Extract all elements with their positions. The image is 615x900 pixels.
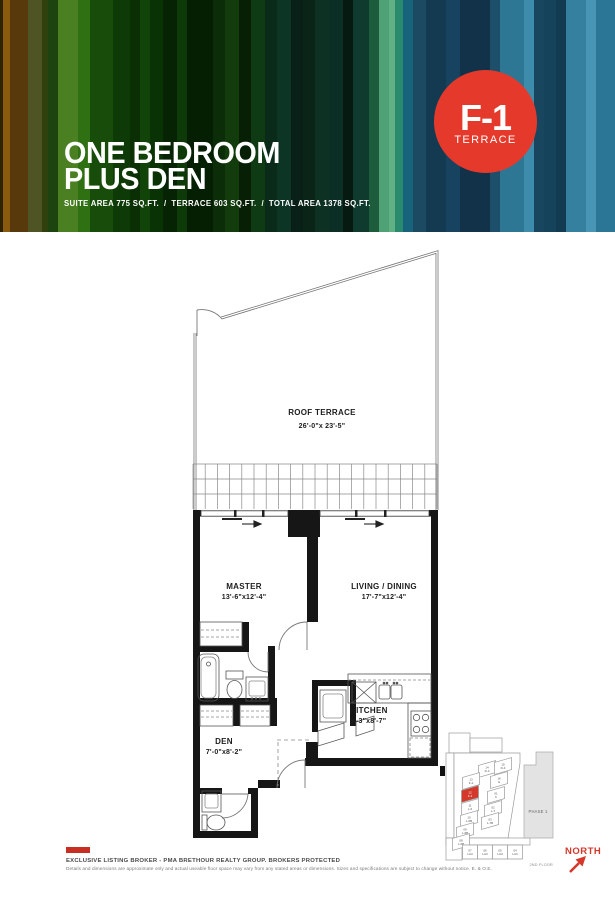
phase-label: PHASE 1 xyxy=(528,809,548,814)
unit-badge: F-1 TERRACE xyxy=(434,70,537,173)
entry-door xyxy=(277,760,305,788)
header-stripe xyxy=(3,0,10,232)
room-label: ROOF TERRACE xyxy=(288,408,356,417)
bathtub xyxy=(198,654,219,701)
header-stripe xyxy=(48,0,58,232)
bathroom-door xyxy=(248,652,268,672)
kitchen-counter xyxy=(348,674,431,758)
roof-terrace: ROOF TERRACE 26'-0"x 23'-5" xyxy=(193,252,437,510)
header-stripe xyxy=(596,0,615,232)
keyplan-block xyxy=(449,733,470,753)
room-label: LIVING / DINING xyxy=(351,582,417,591)
kitchen-sink xyxy=(379,682,402,699)
keyplan-block xyxy=(446,753,454,838)
header-stripe xyxy=(403,0,413,232)
header-stripe xyxy=(10,0,28,232)
area-summary: SUITE AREA 775 SQ.FT. / TERRACE 603 SQ.F… xyxy=(64,198,371,208)
room-label: MASTER xyxy=(226,582,262,591)
washer xyxy=(320,690,346,722)
master-door xyxy=(279,622,307,650)
footer: EXCLUSIVE LISTING BROKER - PMA BRETHOUR … xyxy=(66,847,606,871)
header-stripe xyxy=(566,0,586,232)
stove xyxy=(411,711,431,736)
floorplan-drawing: ROOF TERRACE 26'-0"x 23'-5" xyxy=(0,232,615,900)
unit-code: F-1 xyxy=(460,102,511,134)
keyplan-core-marker xyxy=(440,766,445,776)
room-dims: 7'-0"x8'-2" xyxy=(206,749,242,756)
footer-red-bar xyxy=(66,847,90,853)
powder-vanity xyxy=(202,791,221,812)
header-stripe xyxy=(586,0,596,232)
unit-badge-label: TERRACE xyxy=(454,134,516,147)
angled-closet-door xyxy=(318,723,344,746)
powder-door xyxy=(222,794,248,818)
header-banner: ONE BEDROOM PLUS DEN SUITE AREA 775 SQ.F… xyxy=(0,0,615,232)
header-stripe xyxy=(395,0,403,232)
powder-toilet xyxy=(202,815,225,830)
keyplan-phase1-area xyxy=(524,752,553,838)
terrace-door xyxy=(197,310,222,336)
floorplan-sheet: ONE BEDROOM PLUS DEN SUITE AREA 775 SQ.F… xyxy=(0,0,615,900)
terrace-paver-grid xyxy=(193,464,437,509)
room-dims: 17'-7"x12'-4" xyxy=(362,594,406,601)
header-stripe xyxy=(544,0,556,232)
header-stripe xyxy=(28,0,42,232)
room-label: DEN xyxy=(215,737,233,746)
header-stripe xyxy=(556,0,566,232)
broker-line: EXCLUSIVE LISTING BROKER - PMA BRETHOUR … xyxy=(66,858,606,864)
room-label: KITCHEN xyxy=(350,706,388,715)
room-dims: 26'-0"x 23'-5" xyxy=(299,423,346,430)
master-closet xyxy=(200,622,242,646)
bathroom-vanity xyxy=(246,677,268,701)
room-dims: 13'-6"x12'-4" xyxy=(222,594,266,601)
toilet xyxy=(226,671,243,699)
disclaimer-line: Details and dimensions are approximate o… xyxy=(66,866,606,871)
header-stripe xyxy=(413,0,426,232)
keyplan-block xyxy=(470,738,502,752)
room-dims: 9'-3"x8'-7" xyxy=(350,718,386,725)
title-block: ONE BEDROOM PLUS DEN SUITE AREA 775 SQ.F… xyxy=(64,140,371,208)
header-stripe xyxy=(379,0,389,232)
fridge-dashed xyxy=(410,738,430,757)
